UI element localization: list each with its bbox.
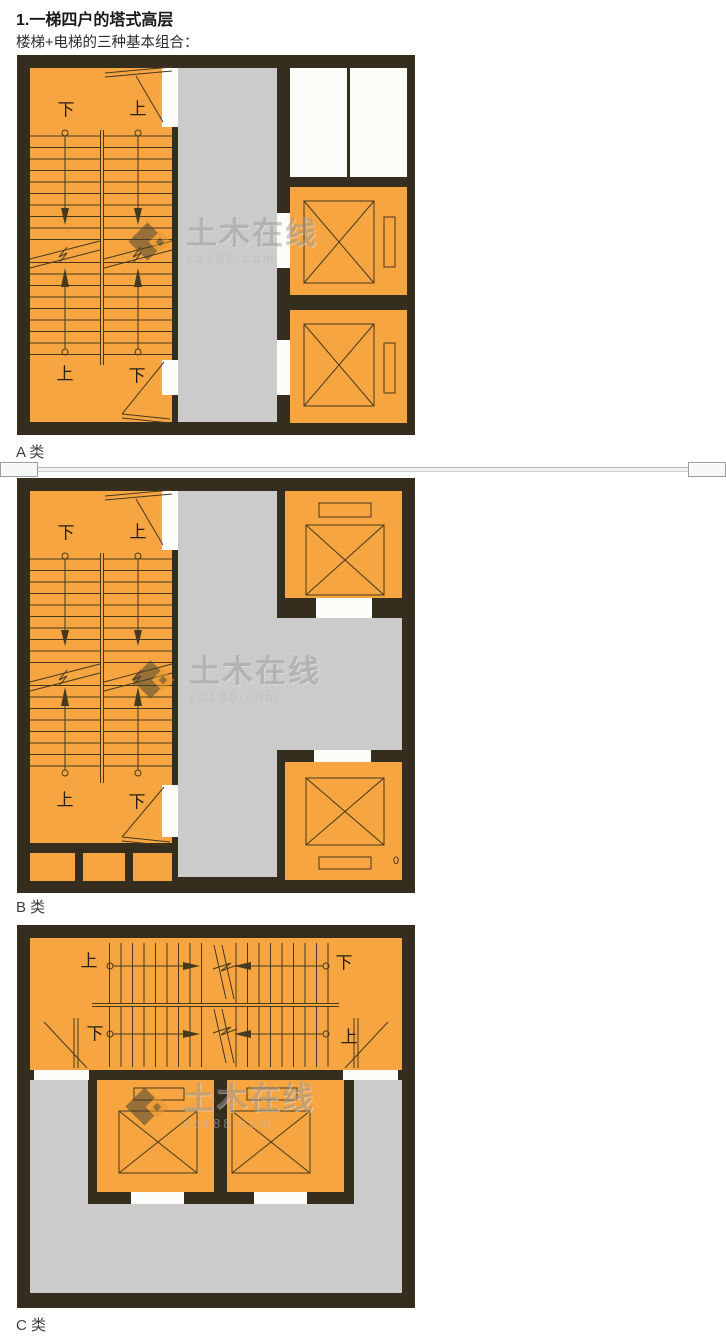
service-shafts bbox=[290, 68, 407, 177]
stair-direction-label: 下 bbox=[87, 1026, 104, 1043]
separator-right-handle[interactable] bbox=[688, 462, 726, 477]
elevator-shaft-upper bbox=[277, 187, 407, 295]
elevator-shaft-lower bbox=[277, 310, 407, 423]
stair-direction-label: 下 bbox=[58, 525, 75, 542]
stairwell bbox=[30, 68, 172, 422]
page-subtitle: 楼梯+电梯的三种基本组合： bbox=[16, 31, 198, 52]
stair-direction-label: 上 bbox=[81, 953, 98, 970]
stairwell bbox=[30, 491, 172, 843]
stair-direction-label: 上 bbox=[130, 101, 147, 118]
stair-direction-label: 下 bbox=[58, 102, 75, 119]
floor-plan-b-drawing bbox=[17, 478, 415, 893]
document-page: 1.一梯四户的塔式高层 楼梯+电梯的三种基本组合： bbox=[0, 0, 726, 1340]
floor-plan-c-drawing bbox=[17, 925, 415, 1308]
floor-plan-a-figure[interactable]: 下 上 上 下 土木在线 co188.com bbox=[17, 55, 415, 435]
stair-direction-label: 下 bbox=[336, 955, 353, 972]
stair-direction-label: 下 bbox=[129, 794, 146, 811]
separator-left-handle[interactable] bbox=[0, 462, 38, 477]
plan-caption-b: B 类 bbox=[16, 896, 45, 917]
stair-direction-label: 上 bbox=[130, 524, 147, 541]
elevator-shaft-right bbox=[227, 1080, 344, 1204]
stair-direction-label: 上 bbox=[57, 366, 74, 383]
corridor bbox=[178, 68, 277, 422]
stray-digit: 0 bbox=[393, 856, 399, 867]
small-shaft-rooms bbox=[30, 853, 172, 881]
separator-line bbox=[0, 467, 726, 472]
elevator-shaft-lower bbox=[285, 750, 402, 880]
plan-caption-c: C 类 bbox=[16, 1314, 46, 1335]
floor-plan-c-figure[interactable]: 上 下 下 上 土木在线 co188.com bbox=[17, 925, 415, 1308]
floor-plan-b-figure[interactable]: 下 上 上 下 0 土木在线 co188.com bbox=[17, 478, 415, 893]
stair-direction-label: 下 bbox=[129, 368, 146, 385]
floor-plan-a-drawing bbox=[17, 55, 415, 435]
stair-direction-label: 上 bbox=[57, 792, 74, 809]
plan-caption-a: A 类 bbox=[16, 441, 44, 462]
page-title: 1.一梯四户的塔式高层 bbox=[16, 6, 173, 30]
elevator-shaft-left bbox=[97, 1080, 214, 1204]
page-separator bbox=[0, 462, 726, 477]
stair-direction-label: 上 bbox=[341, 1029, 358, 1046]
